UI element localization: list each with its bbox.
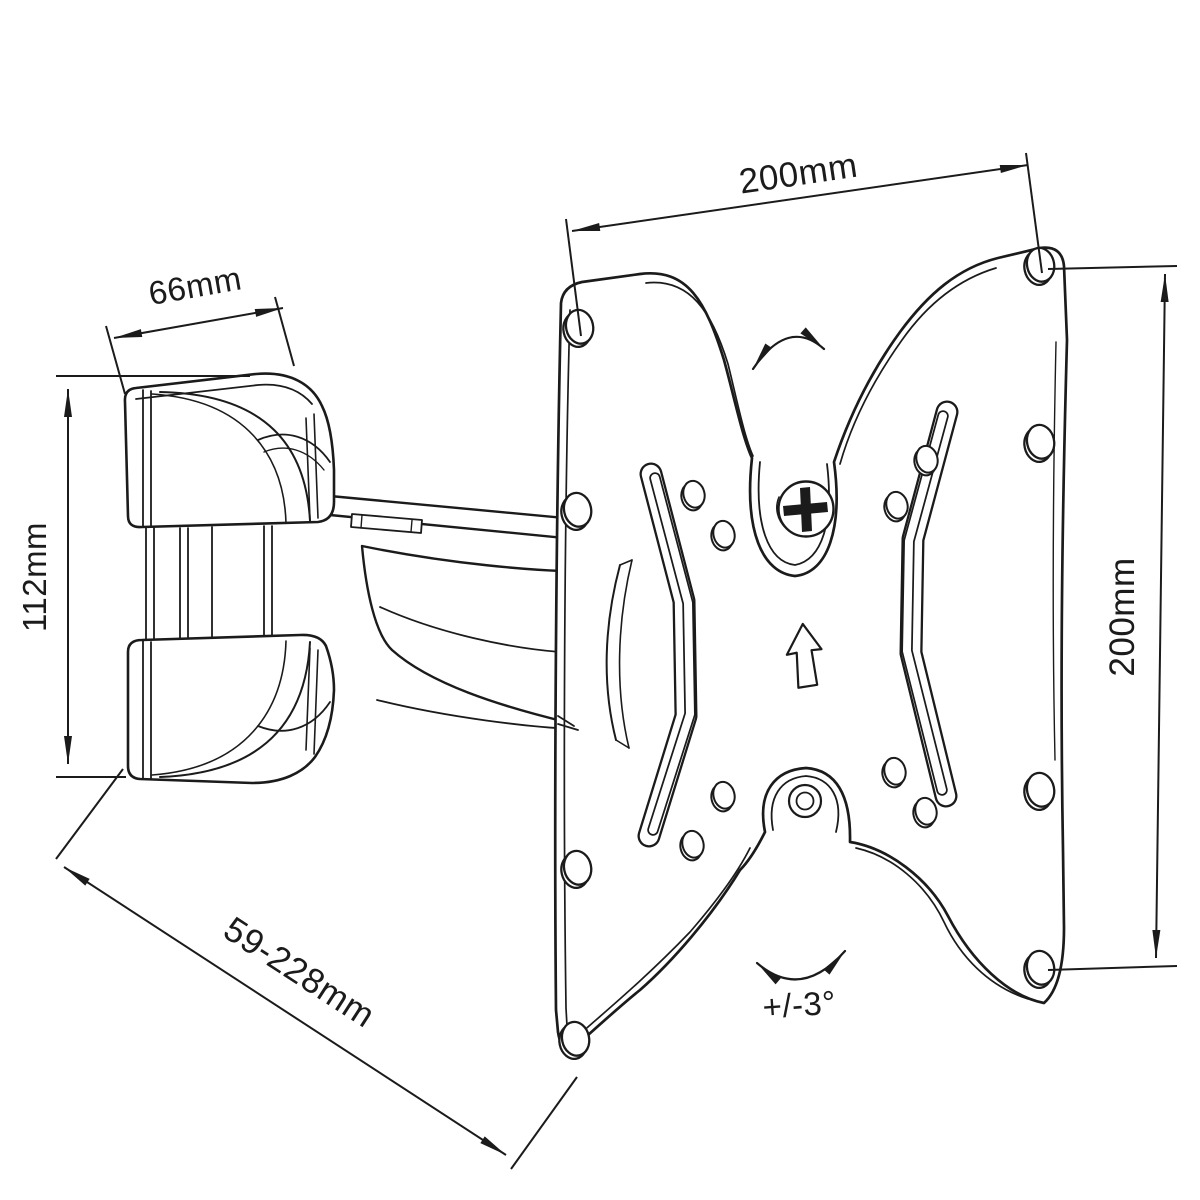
swivel-arrow-top-icon	[753, 337, 824, 369]
dim-bracket-height-label: 112mm	[16, 522, 53, 632]
dim-plate-width-label: 200mm	[737, 146, 861, 202]
dim-plate-height-label: 200mm	[1103, 557, 1142, 676]
vesa-plate	[555, 245, 1067, 1061]
dim-bracket-width-label: 66mm	[146, 259, 245, 312]
wall-bracket	[125, 374, 334, 783]
top-screw	[759, 462, 834, 565]
bracket-lower-block	[128, 635, 334, 783]
arm-wedge	[362, 546, 579, 722]
diagram-canvas: 200mm 200mm 66mm 112mm 59-228mm	[0, 0, 1200, 1200]
dim-arm-extension-label: 59-228mm	[217, 909, 382, 1035]
screw-cross-vertical	[800, 487, 812, 532]
wall-mount-technical-diagram: 200mm 200mm 66mm 112mm 59-228mm	[0, 0, 1200, 1200]
bottom-pivot-screw	[772, 776, 839, 832]
tilt-arrow-bottom-icon	[757, 951, 845, 979]
tilt-range-label: +/-3°	[761, 984, 837, 1026]
dim-arm-extension: 59-228mm	[56, 769, 577, 1169]
